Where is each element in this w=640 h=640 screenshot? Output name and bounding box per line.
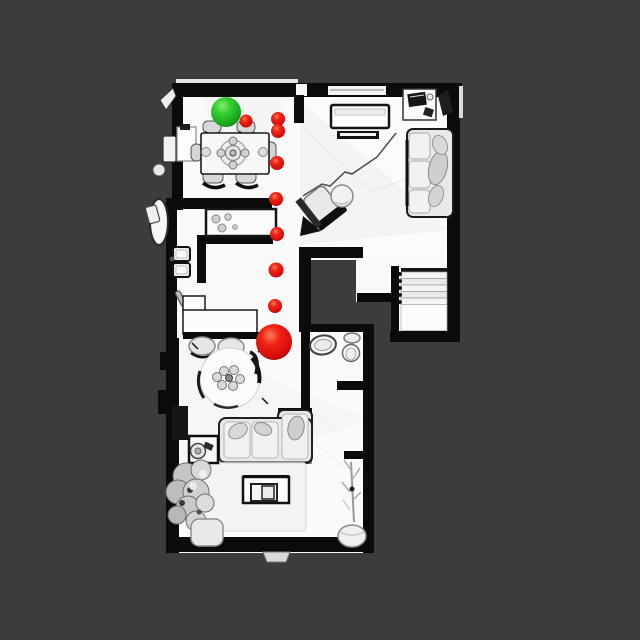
sink-inner [176, 250, 187, 258]
wall-closet-top [344, 451, 364, 459]
door-gap-top [296, 84, 307, 96]
stair-baluster [398, 272, 402, 276]
waypoint-marker [270, 227, 284, 241]
stair-baluster [398, 293, 402, 297]
window-sill-left-1 [160, 352, 173, 370]
stair-baluster [398, 279, 402, 283]
stair-landing [401, 305, 447, 331]
tv-console-shelf [335, 109, 385, 115]
wall-protrusion-left [172, 406, 188, 440]
waypoint-marker [271, 112, 285, 126]
armchair [191, 519, 223, 546]
stair-top-edge [401, 268, 447, 272]
wall-right-lower [363, 324, 374, 553]
place-setting [241, 149, 249, 157]
stove-burner [212, 215, 220, 223]
bar-stool [189, 337, 215, 355]
stair-tread [401, 292, 447, 299]
mug [427, 94, 433, 100]
wall-cap-right [459, 86, 463, 118]
stove-burner [218, 224, 226, 232]
basket [338, 525, 366, 547]
scan-artifact [153, 164, 165, 176]
stove-burner [225, 214, 231, 220]
stove-knob [233, 225, 238, 230]
wall-bathroom-top [301, 324, 371, 332]
faucet [170, 257, 175, 262]
kitchen-island [183, 310, 257, 334]
stair-baluster [398, 286, 402, 290]
stair-tread [401, 272, 447, 279]
centerpiece-knob [230, 150, 236, 156]
wall-bathroom-bottom [337, 381, 364, 390]
toilet-tank [344, 333, 360, 343]
coffee-table-item [262, 486, 274, 499]
sofa-cushion [409, 133, 430, 159]
start-marker [211, 97, 241, 127]
flower [229, 382, 238, 391]
waypoint-marker [271, 124, 285, 138]
stair-tread [401, 285, 447, 292]
flower [213, 373, 222, 382]
stair-tread [401, 279, 447, 286]
wall-dining-kitchen-divider [179, 198, 272, 209]
laptop [407, 92, 427, 107]
flower-center [226, 375, 233, 382]
scene-viewport[interactable] [0, 0, 640, 640]
sofa-cushion [409, 161, 430, 188]
waypoint-marker [268, 299, 282, 313]
stair-baluster [398, 300, 402, 304]
floorplan-scene [0, 0, 640, 640]
flower [230, 366, 239, 375]
waypoint-marker [269, 263, 284, 278]
wall-bathroom-left [301, 332, 310, 416]
place-setting [229, 161, 237, 169]
window-sill-left-2 [158, 390, 173, 414]
plate [259, 148, 268, 157]
tv-console [331, 105, 389, 128]
wall-living-lip-bottom [357, 293, 397, 302]
sink-inner [176, 266, 187, 274]
cabinet-handle [180, 124, 190, 130]
doorway-threshold [263, 552, 290, 562]
door-fixture [163, 136, 176, 162]
waypoint-marker [270, 156, 284, 170]
wall-dining-living-stub [294, 95, 304, 123]
stair-tread [401, 298, 447, 305]
waypoint-marker [240, 115, 253, 128]
soundbar-slit [340, 133, 376, 136]
flower [218, 381, 227, 390]
bottle-cap [195, 448, 201, 454]
toilet-seat [346, 348, 356, 360]
place-setting [217, 149, 225, 157]
wall-notch-left [299, 247, 311, 332]
staircase [398, 268, 447, 331]
counter-edge-vertical [197, 235, 206, 283]
plate [202, 148, 211, 157]
goal-marker [256, 324, 292, 360]
place-setting [229, 137, 237, 145]
wall-stairs-bottom [390, 331, 460, 342]
sofa-cushion [409, 190, 430, 213]
waypoint-marker [269, 192, 283, 206]
flower [236, 375, 245, 384]
